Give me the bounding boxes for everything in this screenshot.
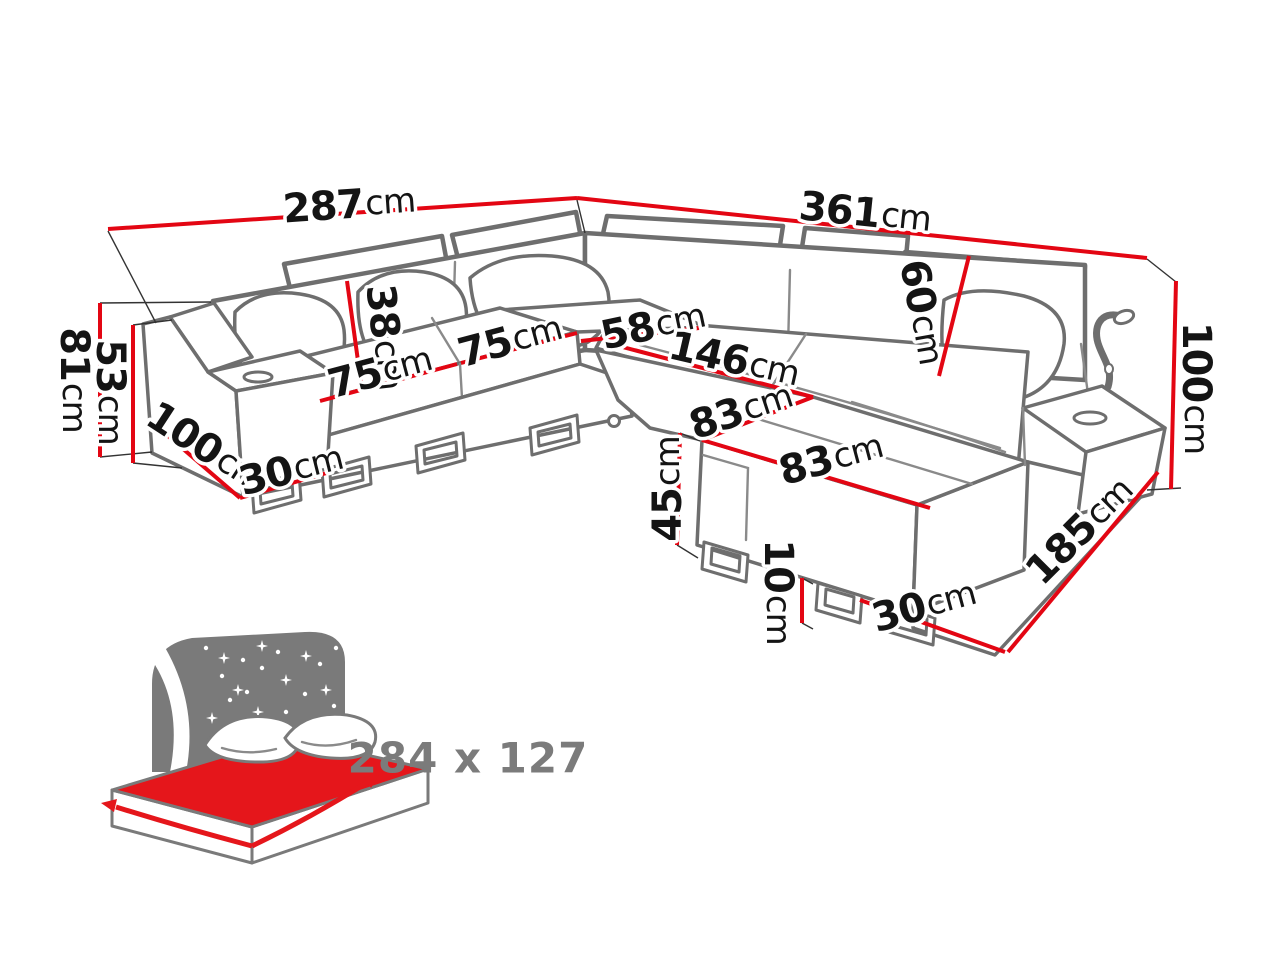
dimension-label-53: 53cm: [87, 339, 133, 445]
cup-holder-icon: [1074, 412, 1106, 424]
dimension-label-100-right: 100cm: [1173, 322, 1219, 454]
cup-holder-icon: [244, 372, 272, 382]
reading-lamp-icon: [1097, 308, 1136, 387]
sleeping-area-label: 284 x 127: [348, 734, 589, 783]
dimension-label-10: 10cm: [755, 539, 801, 645]
furniture-dimension-diagram: 287cm 361cm 81cm 53cm 38cm 75cm 75cm 100…: [0, 0, 1271, 953]
dimension-label-287: 287cm: [281, 177, 416, 232]
dimension-label-45: 45cm: [645, 436, 691, 542]
sofa-drawing-canvas: 287cm 361cm 81cm 53cm 38cm 75cm 75cm 100…: [0, 0, 1271, 953]
sofa-line-drawing: [143, 212, 1165, 655]
sofa-foot-icon: [609, 416, 620, 427]
